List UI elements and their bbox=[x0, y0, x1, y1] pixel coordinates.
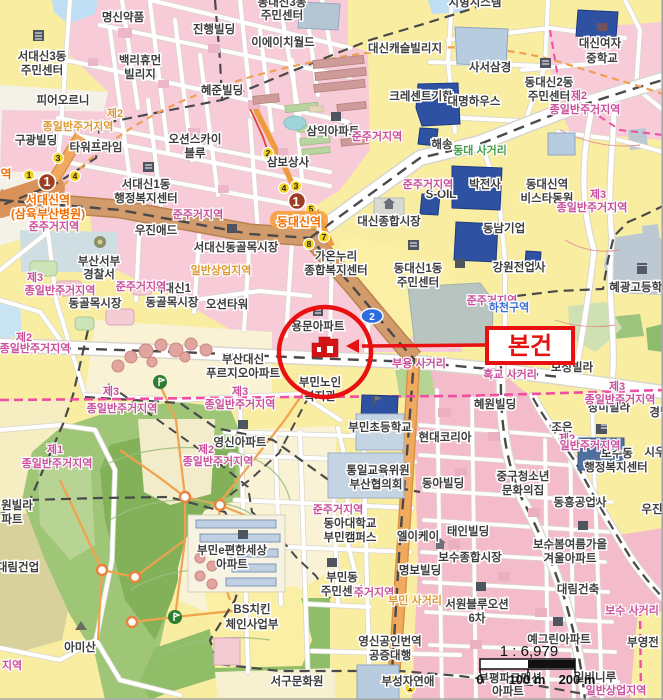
svg-text:제3: 제3 bbox=[27, 270, 43, 284]
svg-text:원빌라: 원빌라 bbox=[1, 498, 33, 512]
svg-text:동아빌딩: 동아빌딩 bbox=[422, 476, 464, 490]
svg-text:동대 사거리: 동대 사거리 bbox=[453, 143, 507, 157]
svg-text:종일반주거지역: 종일반주거지역 bbox=[550, 102, 621, 116]
svg-text:통일교육위원: 통일교육위원 bbox=[346, 463, 409, 477]
svg-text:대림건업: 대림건업 bbox=[0, 560, 39, 574]
svg-text:피어오르니: 피어오르니 bbox=[37, 93, 90, 107]
svg-text:엘이케이: 엘이케이 bbox=[397, 529, 439, 543]
svg-text:부산서부: 부산서부 bbox=[78, 254, 121, 268]
svg-text:종합복지센터: 종합복지센터 bbox=[304, 263, 367, 277]
svg-text:준주거지역: 준주거지역 bbox=[352, 129, 403, 143]
svg-text:백리휴먼: 백리휴먼 bbox=[119, 53, 161, 67]
svg-text:영신공인번역: 영신공인번역 bbox=[358, 634, 421, 648]
svg-text:지역: 지역 bbox=[2, 658, 22, 672]
svg-text:일반상업지역: 일반상업지역 bbox=[191, 263, 252, 277]
svg-text:종일반주거지역: 종일반주거지역 bbox=[25, 283, 96, 297]
svg-text:블루: 블루 bbox=[184, 147, 206, 160]
svg-text:보수종합시장: 보수종합시장 bbox=[438, 550, 502, 564]
svg-text:혜준빌딩: 혜준빌딩 bbox=[201, 83, 243, 97]
svg-text:동아대학교: 동아대학교 bbox=[324, 516, 377, 530]
svg-text:태인빌딩: 태인빌딩 bbox=[447, 524, 489, 538]
svg-text:동흥공업사: 동흥공업사 bbox=[554, 495, 607, 509]
svg-text:부산대신: 부산대신 bbox=[222, 352, 264, 366]
svg-text:보수 사거리: 보수 사거리 bbox=[605, 603, 659, 617]
svg-text:동골목시장: 동골목시장 bbox=[146, 295, 199, 309]
svg-text:빌리지: 빌리지 bbox=[124, 67, 156, 81]
svg-text:겨울아파트: 겨울아파트 bbox=[544, 551, 597, 565]
svg-text:해송: 해송 bbox=[431, 138, 453, 151]
svg-text:부용 사거리: 부용 사거리 bbox=[392, 356, 446, 370]
svg-text:파트: 파트 bbox=[1, 512, 23, 526]
svg-text:제2: 제2 bbox=[16, 330, 32, 344]
svg-text:종일반주거지역: 종일반주거지역 bbox=[87, 401, 158, 415]
svg-text:4: 4 bbox=[73, 171, 78, 181]
svg-text:체인사업부: 체인사업부 bbox=[226, 617, 279, 631]
svg-text:1: 1 bbox=[292, 194, 299, 209]
svg-text:부민캠퍼스: 부민캠퍼스 bbox=[324, 530, 377, 544]
svg-text:종일반주거지역: 종일반주거지역 bbox=[22, 456, 93, 470]
svg-text:문화의집: 문화의집 bbox=[502, 483, 544, 497]
svg-text:서원블루오션: 서원블루오션 bbox=[445, 597, 508, 611]
svg-text:주민센터: 주민센터 bbox=[528, 89, 570, 103]
svg-text:7: 7 bbox=[322, 232, 327, 242]
svg-text:대신캐슬빌리지: 대신캐슬빌리지 bbox=[368, 41, 442, 55]
svg-text:제2: 제2 bbox=[107, 106, 123, 120]
svg-text:(삼육부산병원): (삼육부산병원) bbox=[11, 206, 85, 221]
svg-text:우진: 우진 bbox=[641, 502, 662, 516]
svg-text:1: 1 bbox=[27, 170, 32, 180]
svg-text:종일반주거지역: 종일반주거지역 bbox=[183, 454, 254, 468]
svg-text:오션타워: 오션타워 bbox=[206, 297, 248, 311]
svg-text:공증대행: 공증대행 bbox=[369, 648, 411, 662]
svg-text:0: 0 bbox=[476, 672, 483, 687]
svg-text:종일반주거지역: 종일반주거지역 bbox=[585, 392, 656, 406]
svg-text:종일반주거지역: 종일반주거지역 bbox=[205, 397, 276, 411]
svg-text:영신아파트: 영신아파트 bbox=[214, 435, 267, 449]
svg-text:동대신3동: 동대신3동 bbox=[258, 0, 307, 9]
svg-text:아미산: 아미산 bbox=[64, 640, 96, 654]
svg-text:부민동: 부민동 bbox=[326, 570, 358, 584]
svg-text:서구문화원: 서구문화원 bbox=[271, 674, 324, 688]
svg-text:서대신1동: 서대신1동 bbox=[122, 177, 171, 191]
svg-text:명보빌딩: 명보빌딩 bbox=[399, 563, 441, 577]
svg-text:흑교 사거리: 흑교 사거리 bbox=[483, 367, 537, 381]
svg-text:제2: 제2 bbox=[198, 442, 214, 456]
svg-text:2: 2 bbox=[369, 312, 375, 323]
svg-text:행정복지센터: 행정복지센터 bbox=[114, 191, 177, 205]
svg-text:푸르지오아파트: 푸르지오아파트 bbox=[206, 366, 280, 380]
svg-text:아파트: 아파트 bbox=[216, 557, 248, 571]
svg-text:제3: 제3 bbox=[103, 384, 119, 398]
svg-text:제3: 제3 bbox=[609, 379, 625, 393]
svg-text:동대신1동: 동대신1동 bbox=[394, 261, 443, 275]
svg-text:시우: 시우 bbox=[644, 446, 663, 459]
svg-text:부영전: 부영전 bbox=[627, 635, 659, 649]
svg-text:준주거지역: 준주거지역 bbox=[313, 502, 364, 516]
svg-text:일반주거지역: 일반주거지역 bbox=[560, 438, 621, 452]
svg-text:200 m: 200 m bbox=[559, 672, 596, 687]
svg-text:부민노인: 부민노인 bbox=[299, 375, 341, 389]
svg-text:박전사: 박전사 bbox=[469, 177, 501, 191]
svg-text:준주거지역: 준주거지역 bbox=[403, 177, 454, 191]
svg-text:4: 4 bbox=[282, 183, 287, 193]
svg-text:역: 역 bbox=[0, 166, 11, 181]
svg-text:명신약품: 명신약품 bbox=[102, 10, 145, 24]
svg-text:동대신2동: 동대신2동 bbox=[525, 75, 574, 89]
svg-text:가온누리: 가온누리 bbox=[315, 249, 357, 263]
svg-text:3: 3 bbox=[56, 153, 61, 163]
svg-text:제2: 제2 bbox=[571, 88, 587, 102]
svg-text:보수봄여름가을: 보수봄여름가을 bbox=[533, 537, 607, 551]
svg-text:종일반주거지역: 종일반주거지역 bbox=[43, 119, 114, 133]
svg-text:제3: 제3 bbox=[232, 384, 248, 398]
svg-text:타워프라임: 타워프라임 bbox=[70, 140, 123, 154]
svg-text:동대신역: 동대신역 bbox=[526, 177, 568, 191]
svg-text:주민센터: 주민센터 bbox=[21, 63, 63, 77]
svg-text:부성자연애: 부성자연애 bbox=[382, 674, 435, 688]
svg-text:종일반주거지역: 종일반주거지역 bbox=[557, 200, 628, 214]
svg-text:부민e편한세상: 부민e편한세상 bbox=[197, 543, 267, 557]
svg-text:오션스카이: 오션스카이 bbox=[169, 132, 222, 146]
svg-text:크레센트기함: 크레센트기함 bbox=[389, 89, 453, 103]
svg-text:서대신역: 서대신역 bbox=[26, 192, 70, 207]
svg-text:중구청소년: 중구청소년 bbox=[497, 469, 550, 483]
svg-text:1: 1 bbox=[43, 174, 50, 189]
svg-text:대신종합시장: 대신종합시장 bbox=[357, 214, 421, 228]
svg-text:준주거지역: 준주거지역 bbox=[29, 219, 80, 233]
svg-text:지형시스템: 지형시스템 bbox=[449, 0, 502, 9]
svg-text:용문아파트: 용문아파트 bbox=[292, 319, 345, 333]
svg-text:준주거지역: 준주거지역 bbox=[173, 207, 224, 221]
svg-text:대명하우스: 대명하우스 bbox=[448, 94, 501, 108]
svg-text:진행빌딩: 진행빌딩 bbox=[193, 22, 235, 36]
svg-text:우진애드: 우진애드 bbox=[135, 223, 178, 237]
svg-text:주민센터: 주민센터 bbox=[397, 275, 439, 289]
svg-text:부민 사거리: 부민 사거리 bbox=[388, 593, 442, 607]
svg-text:3: 3 bbox=[294, 181, 299, 191]
svg-text:주민센터: 주민센터 bbox=[261, 8, 303, 22]
svg-text:경찰서: 경찰서 bbox=[83, 267, 115, 281]
svg-text:행정복지센터: 행정복지센터 bbox=[584, 460, 647, 474]
svg-text:서대신3동: 서대신3동 bbox=[18, 49, 67, 63]
svg-text:부산협의회: 부산협의회 bbox=[350, 477, 403, 491]
svg-text:하천구역: 하천구역 bbox=[489, 300, 529, 314]
svg-text:혜광고등학교: 혜광고등학교 bbox=[609, 280, 663, 294]
svg-text:이에이치월드: 이에이치월드 bbox=[251, 35, 315, 49]
svg-text:경남: 경남 bbox=[649, 405, 663, 419]
svg-text:부민초등학교: 부민초등학교 bbox=[348, 420, 412, 434]
svg-text:제1: 제1 bbox=[47, 442, 63, 456]
svg-text:1 : 6,979: 1 : 6,979 bbox=[500, 643, 558, 660]
svg-text:대신여자: 대신여자 bbox=[579, 36, 622, 50]
svg-text:중학교: 중학교 bbox=[586, 51, 618, 65]
svg-text:제3: 제3 bbox=[590, 187, 606, 201]
svg-text:삼보상사: 삼보상사 bbox=[267, 155, 310, 169]
svg-text:대림건축: 대림건축 bbox=[557, 582, 600, 596]
svg-text:준주거지역: 준주거지역 bbox=[116, 279, 167, 293]
svg-text:사서삼경: 사서삼경 bbox=[469, 60, 511, 74]
svg-text:종일반주거지역: 종일반주거지역 bbox=[0, 341, 70, 355]
svg-text:현대코리아: 현대코리아 bbox=[419, 430, 472, 444]
svg-text:동남기업: 동남기업 bbox=[483, 221, 525, 235]
svg-text:동골목시장: 동골목시장 bbox=[69, 296, 122, 310]
svg-text:서대신동골목시장: 서대신동골목시장 bbox=[194, 240, 279, 254]
svg-text:8: 8 bbox=[307, 239, 312, 249]
svg-text:본건: 본건 bbox=[508, 333, 552, 360]
svg-text:구광빌딩: 구광빌딩 bbox=[15, 133, 57, 147]
svg-text:6차: 6차 bbox=[469, 611, 486, 625]
svg-text:BS치킨: BS치킨 bbox=[233, 602, 270, 616]
svg-text:동대신역: 동대신역 bbox=[277, 214, 321, 229]
svg-text:강원전업사: 강원전업사 bbox=[493, 260, 546, 274]
svg-text:혜원빌딩: 혜원빌딩 bbox=[474, 397, 516, 411]
svg-text:100 m: 100 m bbox=[509, 672, 546, 687]
